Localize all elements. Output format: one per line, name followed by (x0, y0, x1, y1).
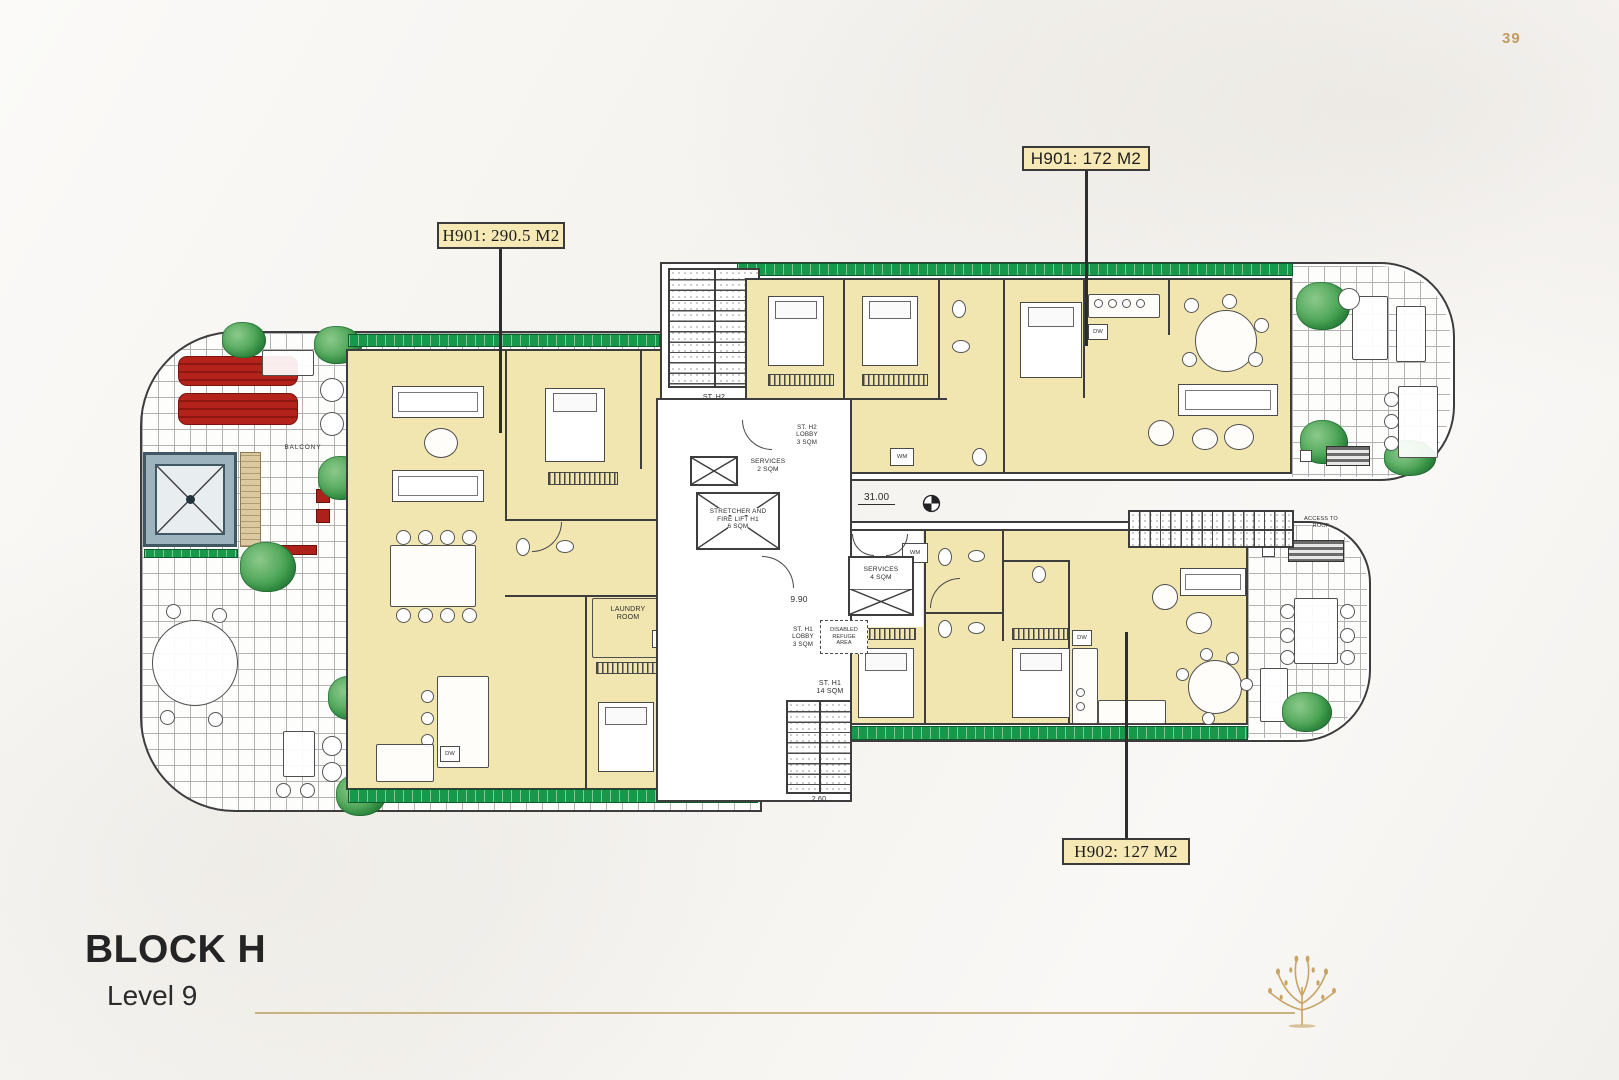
chair (1222, 294, 1237, 309)
dimension-31: 31.00 (858, 492, 895, 505)
planter-strip (737, 263, 1293, 276)
terrace-chair (276, 783, 291, 798)
north-symbol-icon (922, 494, 941, 513)
plant-icon (1282, 692, 1332, 732)
toilet (972, 448, 987, 466)
stove-burner (1076, 688, 1085, 697)
sofa (392, 470, 484, 502)
stair-h1-label: ST. H114 SQM (804, 680, 856, 697)
plant-icon (240, 542, 296, 592)
sofa (1178, 384, 1278, 416)
dishwasher-box: DW (1088, 324, 1108, 340)
chair (462, 608, 477, 623)
wall (1168, 280, 1170, 335)
unit-label-h901-right: H901: 172 M2 (1022, 146, 1150, 171)
services-2sqm-shaft (690, 456, 738, 486)
storage-bench (1288, 540, 1344, 562)
sun-lounger (1396, 306, 1426, 362)
dimension-990: 9.90 (782, 594, 816, 604)
disabled-refuge-box: DISABLEDREFUGEAREA (820, 620, 868, 654)
chair (462, 530, 477, 545)
wall (505, 349, 507, 519)
wall (1004, 560, 1070, 562)
basin (952, 340, 970, 353)
basin (556, 540, 574, 553)
stove-burner (1108, 299, 1117, 308)
terrace-chair (322, 736, 342, 756)
chair (1240, 678, 1253, 691)
planter-strip (848, 726, 1248, 740)
toilet (938, 548, 952, 566)
ottoman (1224, 424, 1254, 450)
terrace-chair (320, 378, 344, 402)
table (376, 744, 434, 782)
chair (1200, 648, 1213, 661)
chair (1384, 392, 1399, 407)
chair (1340, 650, 1355, 665)
kitchen-counter (1072, 648, 1098, 724)
terrace-dining-table (1398, 386, 1438, 458)
coffee-table (424, 428, 458, 458)
sofa (392, 386, 484, 418)
bed (862, 296, 918, 366)
leader-line (1125, 632, 1128, 838)
washing-machine-box: WM (890, 448, 914, 466)
terrace-table (262, 350, 314, 376)
dimension-260: 2.60 (800, 796, 838, 804)
wall (640, 349, 642, 469)
chair (1340, 604, 1355, 619)
wall (938, 280, 940, 398)
stove-burner (1094, 299, 1103, 308)
chair (1202, 712, 1215, 725)
storage-bench (1326, 446, 1370, 466)
stool (421, 712, 434, 725)
wall (1003, 280, 1005, 472)
wardrobe (768, 374, 834, 386)
stair-access-roof (1128, 510, 1294, 548)
terrace-chair (166, 604, 181, 619)
dining-table-round (1188, 660, 1242, 714)
unit-label-h902: H902: 127 M2 (1062, 838, 1190, 865)
dishwasher-box: DW (1072, 630, 1092, 646)
ottoman (1192, 428, 1218, 450)
wardrobe (862, 374, 928, 386)
terrace-chair (208, 712, 223, 727)
chair (1384, 414, 1399, 429)
planter-strip (348, 334, 660, 347)
floor-plan: BALCONY DW (0, 0, 1619, 1080)
planter-strip (144, 549, 238, 558)
stove-burner (1076, 702, 1085, 711)
block-title: BLOCK H (85, 928, 266, 972)
bed (1020, 302, 1082, 378)
access-roof-label: ACCESS TOROOF (1298, 516, 1344, 529)
stair-h1 (786, 700, 852, 794)
terrace-chair (322, 762, 342, 782)
plant-icon (222, 322, 266, 358)
basin (1032, 566, 1046, 583)
planter-box (240, 452, 261, 547)
chair (1340, 628, 1355, 643)
fire-lift-shaft: STRETCHER AND FIRE LIFT H1 6 SQM (696, 492, 780, 550)
bed (1012, 648, 1070, 718)
terrace-chair (160, 710, 175, 725)
red-lounger (178, 393, 298, 425)
leader-line (499, 249, 502, 433)
wall (924, 612, 1004, 614)
dining-table (390, 545, 476, 607)
chair (1280, 628, 1295, 643)
chair (1280, 604, 1295, 619)
chair (1182, 352, 1197, 367)
chair (1248, 352, 1263, 367)
chair (440, 608, 455, 623)
armchair (1152, 584, 1178, 610)
stove-burner (1136, 299, 1145, 308)
bed (858, 648, 914, 718)
stool (421, 690, 434, 703)
chair (396, 608, 411, 623)
bed (768, 296, 824, 366)
chair (1254, 318, 1269, 333)
kitchen-counter (1098, 700, 1166, 724)
terrace-chair (212, 608, 227, 623)
basin (968, 550, 985, 562)
armchair (1148, 420, 1174, 446)
brochure-page: 39 (0, 0, 1619, 1080)
round-table (152, 620, 238, 706)
chair (1384, 436, 1399, 451)
divider-rule (255, 1012, 1295, 1014)
chair (418, 530, 433, 545)
wall (843, 280, 845, 398)
terrace-chair (300, 783, 315, 798)
bed (545, 388, 605, 462)
ottoman (1186, 612, 1212, 634)
stair-h1-lobby-label: ST. H1LOBBY3 SQM (786, 626, 820, 648)
services-4sqm-shaft: SERVICES4 SQM (848, 556, 914, 616)
red-stool (316, 509, 330, 523)
stair-h2-lobby-label: ST. H2LOBBY3 SQM (786, 424, 828, 446)
level-subtitle: Level 9 (107, 980, 197, 1012)
dining-table-round (1195, 310, 1257, 372)
chair (1184, 298, 1199, 313)
bed (598, 702, 654, 772)
terrace-chair (320, 412, 344, 436)
toilet (516, 538, 530, 556)
wall (1002, 531, 1004, 641)
chair (440, 530, 455, 545)
wardrobe (1012, 628, 1068, 640)
chair (1226, 652, 1239, 665)
terrace-chair (1338, 288, 1360, 310)
chair (1176, 668, 1189, 681)
brand-tree-logo-icon (1262, 946, 1342, 1034)
chair (418, 608, 433, 623)
laundry-label: LAUNDRYROOM (600, 606, 656, 623)
terrace-dining-table (1294, 598, 1338, 664)
pool-icon (143, 452, 237, 547)
chair (1280, 650, 1295, 665)
wall (585, 595, 587, 790)
toilet (952, 300, 966, 318)
basin (968, 622, 985, 634)
unit-label-h901-left: H901: 290.5 M2 (437, 222, 565, 249)
chair (396, 530, 411, 545)
sofa (1180, 568, 1246, 596)
balcony-label: BALCONY (276, 444, 330, 452)
services-2sqm-label: SERVICES2 SQM (742, 458, 794, 474)
toilet (938, 620, 952, 638)
leader-line (1085, 170, 1088, 346)
stove-burner (1122, 299, 1131, 308)
lamp (1300, 450, 1312, 462)
dishwasher-box: DW (440, 746, 460, 762)
terrace-table (283, 731, 315, 777)
wardrobe (548, 472, 618, 485)
